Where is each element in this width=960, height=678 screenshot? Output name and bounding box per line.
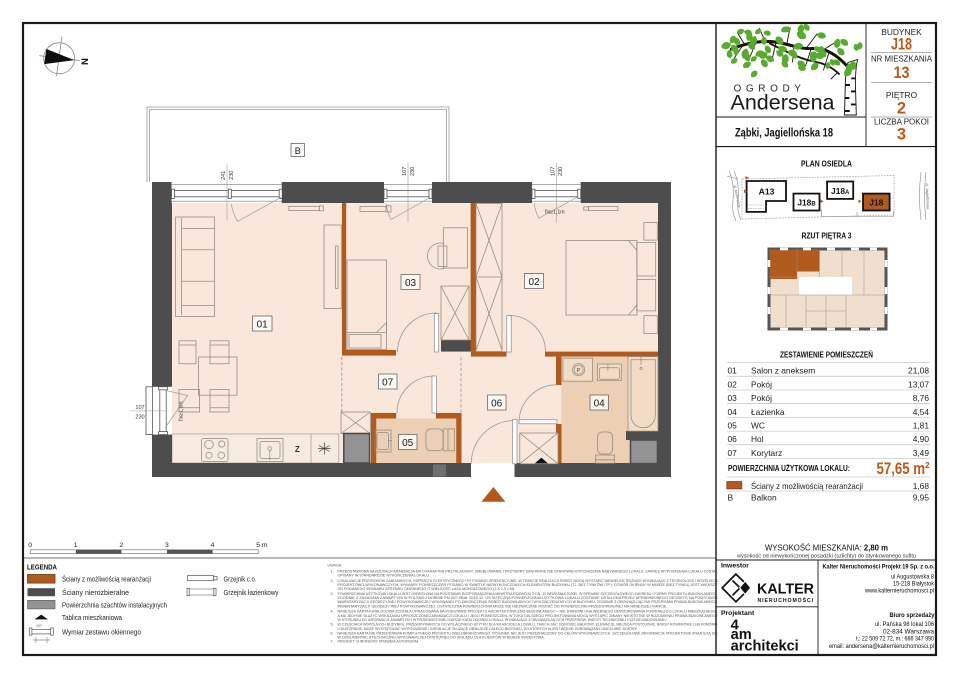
svg-text:OPISANY W STANDARDZIE WYKOŃCZE: OPISANY W STANDARDZIE WYKOŃCZENIA LOKALU…	[338, 574, 430, 578]
svg-text:Hol: Hol	[751, 434, 764, 444]
svg-text:2: 2	[119, 542, 123, 549]
svg-text:LOKATORSKIE, MOŻE WYSTĘPOWAĆ W: LOKATORSKIE, MOŻE WYSTĘPOWAĆ WYPOSAŻENIE…	[338, 626, 638, 631]
svg-text:07: 07	[382, 378, 394, 389]
svg-text:107: 107	[36, 624, 42, 628]
svg-text:230: 230	[229, 171, 235, 180]
svg-text:13: 13	[894, 64, 910, 82]
svg-text:1: 1	[74, 542, 78, 549]
svg-text:57,65 m²: 57,65 m²	[877, 460, 930, 478]
svg-text:2: 2	[897, 99, 906, 117]
svg-text:Andersena: Andersena	[731, 91, 835, 115]
svg-text:www.kalternieruchomosci.pl: www.kalternieruchomosci.pl	[864, 587, 934, 594]
svg-text:03: 03	[728, 393, 738, 403]
svg-text:07: 07	[728, 448, 738, 458]
svg-text:Projektant: Projektant	[721, 610, 755, 617]
svg-text:email: andersena@kalternieruch: email: andersena@kalternieruchomosci.pl	[829, 643, 934, 650]
svg-text:Pokój: Pokój	[751, 379, 772, 389]
svg-text:04: 04	[594, 399, 606, 410]
svg-text:PROJEKT CHRONIONY PRAWEM AUTOR: PROJEKT CHRONIONY PRAWEM AUTORSKIM.	[338, 640, 420, 644]
svg-text:fix≥1,1m: fix≥1,1m	[545, 210, 565, 216]
svg-text:NR MIESZKANIA: NR MIESZKANIA	[871, 54, 932, 64]
svg-text:02: 02	[528, 277, 540, 288]
svg-text:01: 01	[257, 320, 269, 331]
svg-text:J18: J18	[891, 35, 912, 53]
svg-text:4.: 4.	[331, 610, 334, 614]
svg-text:21,08: 21,08	[908, 366, 929, 376]
svg-text:Ściany z możliwością rearanżac: Ściany z możliwością rearanżacji	[751, 480, 863, 491]
svg-text:LEGENDA: LEGENDA	[27, 563, 57, 572]
svg-text:4: 4	[211, 542, 215, 549]
svg-text:0: 0	[28, 542, 32, 549]
svg-text:3.: 3.	[331, 592, 334, 596]
svg-text:UWAGA:: UWAGA:	[328, 563, 343, 567]
svg-text:Z: Z	[295, 445, 300, 454]
svg-text:Grzejnik łazienkowy: Grzejnik łazienkowy	[224, 588, 279, 597]
svg-text:ul Augustowska 8: ul Augustowska 8	[891, 573, 934, 580]
svg-text:3,49: 3,49	[913, 448, 930, 458]
svg-text:4,90: 4,90	[913, 434, 930, 444]
svg-text:WYSOKOŚĆ MIESZKANIA: 2,80 m: WYSOKOŚĆ MIESZKANIA: 2,80 m	[765, 542, 888, 553]
svg-text:W STOSUNKU DO INFORMACJI ZAWAR: W STOSUNKU DO INFORMACJI ZAWARTYCH W PRZ…	[338, 617, 668, 622]
svg-text:A13: A13	[759, 187, 775, 197]
svg-text:01: 01	[728, 366, 738, 376]
svg-text:Pokój: Pokój	[751, 393, 772, 403]
svg-text:Grzejnik c.o.: Grzejnik c.o.	[224, 574, 257, 583]
svg-text:Ściany nierozbieralne: Ściany nierozbieralne	[62, 588, 129, 597]
svg-text:PLAN OSIEDLA: PLAN OSIEDLA	[801, 160, 852, 169]
svg-text:5 m: 5 m	[256, 542, 268, 549]
svg-text:241: 241	[221, 171, 227, 180]
svg-text:INWENTARYZACJI GEODEZYJNEJ POW: INWENTARYZACJI GEODEZYJNEJ POWYKONAWCZEJ…	[338, 603, 668, 608]
svg-text:Ząbki, Jagiellońska 18: Ząbki, Jagiellońska 18	[735, 126, 833, 140]
svg-text:Balkon: Balkon	[751, 493, 777, 503]
svg-text:P: P	[577, 368, 581, 374]
svg-text:WC: WC	[751, 421, 765, 431]
svg-text:02: 02	[728, 379, 738, 389]
svg-text:3: 3	[897, 126, 906, 144]
svg-text:fix≥1,1m: fix≥1,1m	[179, 401, 185, 421]
svg-text:1.: 1.	[331, 569, 334, 573]
svg-text:Łazienka: Łazienka	[751, 407, 785, 417]
svg-text:107: 107	[551, 167, 557, 176]
svg-text:KALTER: KALTER	[757, 582, 815, 598]
svg-text:N: N	[78, 58, 89, 65]
svg-text:Kalter Nieruchomości Projekt 1: Kalter Nieruchomości Projekt 19 Sp. z o.…	[823, 563, 935, 570]
svg-text:J18: J18	[869, 197, 883, 207]
svg-text:ul. Pańska 98 lokal 106: ul. Pańska 98 lokal 106	[875, 621, 934, 628]
svg-text:04: 04	[728, 407, 738, 417]
svg-text:15-218 Białystok: 15-218 Białystok	[893, 580, 935, 587]
svg-text:B: B	[295, 146, 301, 156]
svg-text:4,54: 4,54	[913, 407, 930, 417]
svg-text:02-834 Warszawa: 02-834 Warszawa	[883, 628, 934, 635]
svg-text:6.: 6.	[331, 631, 334, 635]
svg-text:230: 230	[410, 167, 416, 176]
svg-text:B: B	[728, 493, 734, 503]
svg-text:wysokość od niewykończonej pos: wysokość od niewykończonej posadzki (szl…	[736, 554, 916, 560]
svg-text:t.: 22 509 72 72, m.: 666 347: t.: 22 509 72 72, m.: 666 347 990	[856, 636, 934, 643]
svg-text:3: 3	[165, 542, 169, 549]
svg-text:8,76: 8,76	[913, 393, 930, 403]
svg-text:ZESTAWIENIE POMIESZCZEŃ: ZESTAWIENIE POMIESZCZEŃ	[780, 351, 873, 360]
svg-text:NIERUCHOMOŚCI: NIERUCHOMOŚCI	[758, 597, 815, 604]
svg-text:Powierzchnia szachtów instalac: Powierzchnia szachtów instalacyjnych	[62, 600, 167, 609]
svg-text:107: 107	[402, 167, 408, 176]
svg-text:Wymiar zestawu okiennego: Wymiar zestawu okiennego	[62, 628, 141, 637]
svg-text:06: 06	[728, 434, 738, 444]
svg-text:architekci: architekci	[731, 638, 799, 654]
svg-text:06: 06	[491, 399, 503, 410]
svg-text:1,81: 1,81	[913, 421, 930, 431]
svg-text:03: 03	[405, 278, 417, 289]
svg-text:OD PODANEGO WYMIARU ZESTAWU OK: OD PODANEGO WYMIARU ZESTAWU OKIENNEGO O …	[338, 586, 516, 591]
svg-text:Korytarz: Korytarz	[751, 448, 782, 458]
svg-text:05: 05	[728, 421, 738, 431]
svg-text:107: 107	[135, 405, 144, 411]
svg-text:Biuro sprzedaży: Biuro sprzedaży	[890, 612, 935, 619]
svg-text:Salon z aneksem: Salon z aneksem	[751, 366, 815, 376]
svg-text:230: 230	[135, 414, 144, 420]
svg-text:7.: 7.	[331, 640, 334, 644]
svg-text:5.: 5.	[331, 623, 334, 627]
svg-text:1,68: 1,68	[913, 481, 930, 491]
svg-text:05: 05	[402, 438, 414, 449]
svg-text:9,95: 9,95	[913, 493, 930, 503]
svg-text:Ściany z możliwością rearanżac: Ściany z możliwością rearanżacji	[62, 574, 151, 583]
svg-text:RZUT PIĘTRA 3: RZUT PIĘTRA 3	[802, 231, 852, 240]
svg-text:230: 230	[558, 167, 564, 176]
svg-text:13,07: 13,07	[908, 379, 929, 389]
svg-text:Tablica mieszkaniowa: Tablica mieszkaniowa	[62, 613, 122, 622]
svg-text:POWIERZCHNIA UŻYTKOWA LOKALU:: POWIERZCHNIA UŻYTKOWA LOKALU:	[728, 464, 850, 473]
svg-text:Inwestor: Inwestor	[721, 562, 749, 569]
svg-text:2.: 2.	[331, 579, 334, 583]
